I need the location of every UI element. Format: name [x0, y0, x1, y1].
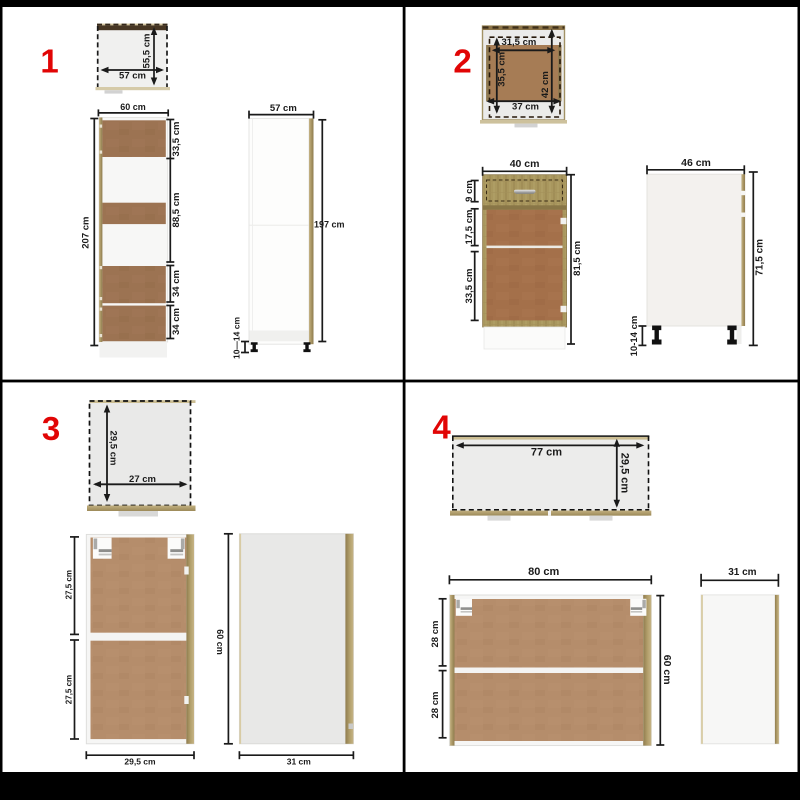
svg-text:60 cm: 60 cm: [661, 655, 673, 685]
svg-text:29,5 cm: 29,5 cm: [124, 757, 156, 767]
svg-text:34 cm: 34 cm: [171, 270, 182, 297]
svg-text:10—14 cm: 10—14 cm: [231, 317, 241, 359]
svg-text:27,5 cm: 27,5 cm: [65, 675, 74, 704]
svg-text:34 cm: 34 cm: [171, 308, 182, 335]
svg-text:81,5 cm: 81,5 cm: [572, 241, 583, 276]
svg-text:77 cm: 77 cm: [531, 446, 562, 458]
svg-text:57 cm: 57 cm: [119, 70, 146, 81]
svg-text:46 cm: 46 cm: [681, 157, 711, 169]
svg-text:55,5 cm: 55,5 cm: [141, 34, 152, 69]
svg-text:31 cm: 31 cm: [287, 757, 312, 767]
svg-text:28 cm: 28 cm: [430, 692, 441, 719]
svg-text:29,5 cm: 29,5 cm: [107, 431, 118, 466]
svg-text:33,5 cm: 33,5 cm: [171, 122, 182, 157]
svg-text:9 cm: 9 cm: [464, 180, 475, 202]
svg-text:2: 2: [453, 43, 471, 80]
svg-text:60 cm: 60 cm: [120, 102, 146, 112]
svg-text:60 cm: 60 cm: [215, 629, 225, 655]
svg-text:42 cm: 42 cm: [540, 71, 551, 98]
svg-text:10-14 cm: 10-14 cm: [629, 316, 640, 357]
svg-text:40 cm: 40 cm: [510, 158, 540, 170]
svg-text:31,5 cm: 31,5 cm: [501, 37, 536, 48]
svg-text:29,5 cm: 29,5 cm: [618, 453, 630, 494]
svg-text:37 cm: 37 cm: [512, 101, 539, 112]
svg-text:35,5 cm: 35,5 cm: [497, 52, 508, 87]
svg-text:71,5 cm: 71,5 cm: [754, 239, 765, 276]
svg-text:28 cm: 28 cm: [430, 621, 441, 648]
svg-text:31 cm: 31 cm: [728, 567, 756, 578]
svg-text:17,5 cm: 17,5 cm: [464, 210, 475, 245]
svg-text:27,5 cm: 27,5 cm: [65, 570, 74, 599]
svg-text:3: 3: [42, 410, 60, 447]
svg-text:80 cm: 80 cm: [528, 566, 559, 578]
svg-text:88,5 cm: 88,5 cm: [171, 193, 182, 228]
svg-text:4: 4: [432, 409, 451, 446]
svg-text:207 cm: 207 cm: [81, 216, 92, 248]
svg-text:1: 1: [40, 43, 58, 80]
svg-text:27 cm: 27 cm: [129, 474, 156, 485]
svg-text:197 cm: 197 cm: [314, 219, 345, 229]
svg-text:33,5 cm: 33,5 cm: [464, 269, 475, 304]
svg-text:57 cm: 57 cm: [270, 103, 297, 114]
